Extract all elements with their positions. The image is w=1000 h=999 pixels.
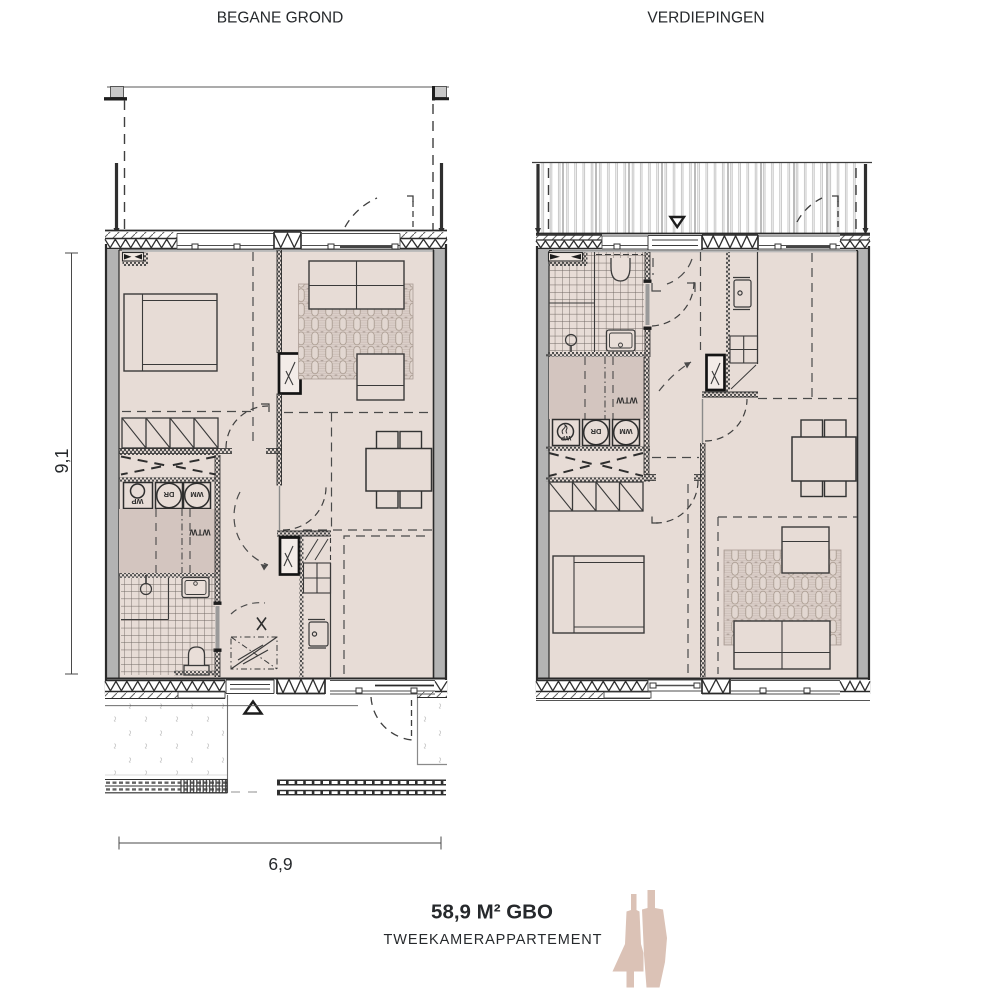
svg-text:WP: WP: [560, 434, 571, 441]
svg-text:6,9: 6,9: [268, 854, 292, 874]
svg-text:WP: WP: [131, 497, 143, 506]
svg-text:TWEEKAMERAPPARTEMENT: TWEEKAMERAPPARTEMENT: [384, 932, 603, 948]
svg-text:WTW: WTW: [188, 528, 210, 538]
svg-text:DR: DR: [590, 427, 601, 436]
svg-text:BEGANE GROND: BEGANE GROND: [217, 10, 344, 27]
svg-text:WM: WM: [619, 427, 632, 436]
svg-text:WTW: WTW: [615, 396, 637, 406]
svg-text:WM: WM: [190, 490, 203, 499]
svg-text:VERDIEPINGEN: VERDIEPINGEN: [647, 10, 764, 27]
svg-text:58,9 M² GBO: 58,9 M² GBO: [431, 901, 553, 924]
svg-text:DR: DR: [163, 490, 174, 499]
svg-text:9,1: 9,1: [52, 448, 72, 473]
